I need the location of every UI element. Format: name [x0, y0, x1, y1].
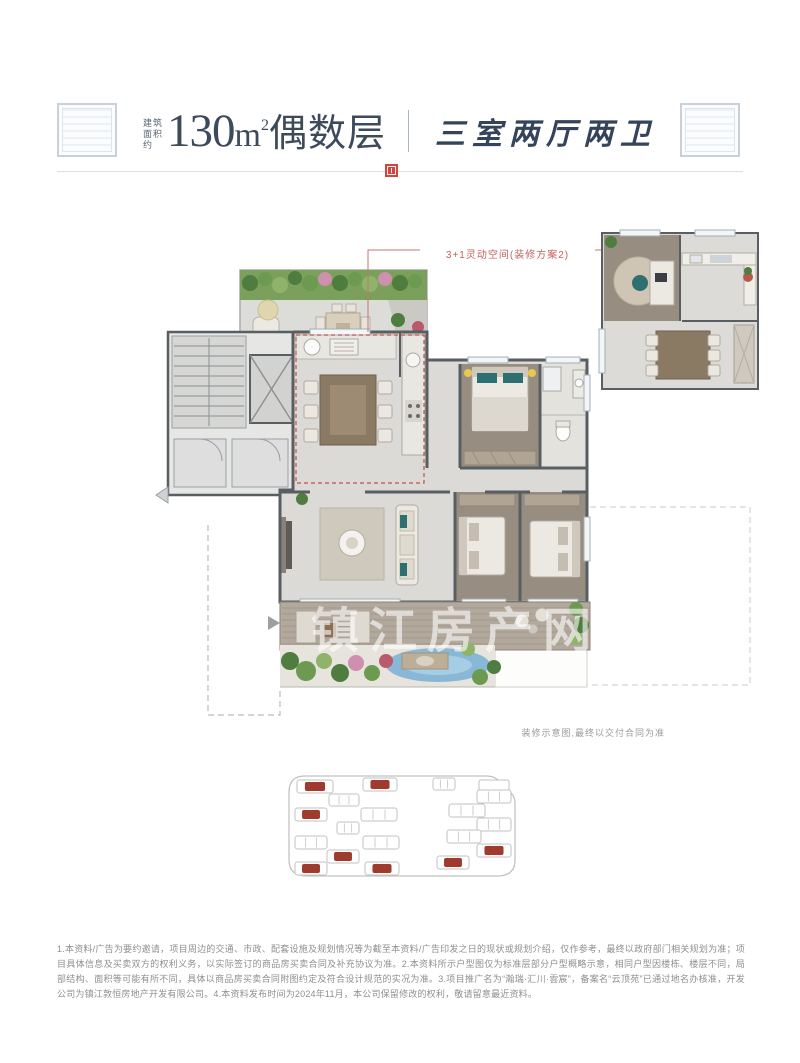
site-building [477, 844, 511, 857]
inset-plan [599, 230, 758, 389]
area-sup: 2 [261, 117, 269, 135]
area-value: 130 [167, 108, 235, 155]
site-building [295, 836, 327, 849]
balcony [268, 602, 590, 650]
site-building [361, 808, 397, 821]
site-building [449, 804, 485, 817]
site-building [327, 850, 359, 863]
floor-type-label: 偶数层 [269, 115, 386, 153]
title-divider [408, 110, 409, 152]
area-prefix-label: 建筑面积约 [143, 118, 163, 151]
red-seal-icon [385, 164, 398, 177]
site-building [363, 778, 397, 791]
site-building [295, 862, 327, 875]
floor-plan: 3+1灵动空间(装修方案2) 镇江房产网 装修示意图,最终以交付合同为准 [150, 225, 770, 745]
site-building [477, 790, 511, 803]
plan-annotation: 3+1灵动空间(装修方案2) [420, 246, 595, 261]
site-building [363, 836, 399, 849]
site-building [437, 856, 469, 869]
garden [280, 642, 501, 687]
floor-plan-svg [150, 225, 770, 745]
core-stair-elevator [156, 332, 293, 503]
site-building [447, 830, 481, 843]
header-rule [57, 171, 743, 172]
site-plan-svg [281, 760, 521, 892]
area-figure: 130m2偶数层 [167, 108, 386, 155]
flyer-page: { "header": { "area_prefix": "建筑面积约", "a… [0, 0, 800, 1063]
site-building [329, 794, 359, 806]
disclaimer-text: 1.本资料/广告为要约邀请，项目周边的交通、市政、配套设施及规划情况等为截至本资… [57, 942, 745, 1002]
layout-name: 三室两厅两卫 [435, 109, 657, 153]
site-building [337, 822, 359, 834]
site-building [297, 780, 333, 793]
site-building [477, 818, 511, 831]
site-building [295, 808, 327, 821]
site-building [365, 862, 399, 875]
plan-note: 装修示意图,最终以交付合同为准 [485, 726, 665, 739]
site-plan [281, 760, 521, 892]
site-building [433, 778, 455, 790]
header: 建筑面积约 130m2偶数层 三室两厅两卫 [0, 100, 800, 162]
area-unit: m [235, 119, 261, 153]
